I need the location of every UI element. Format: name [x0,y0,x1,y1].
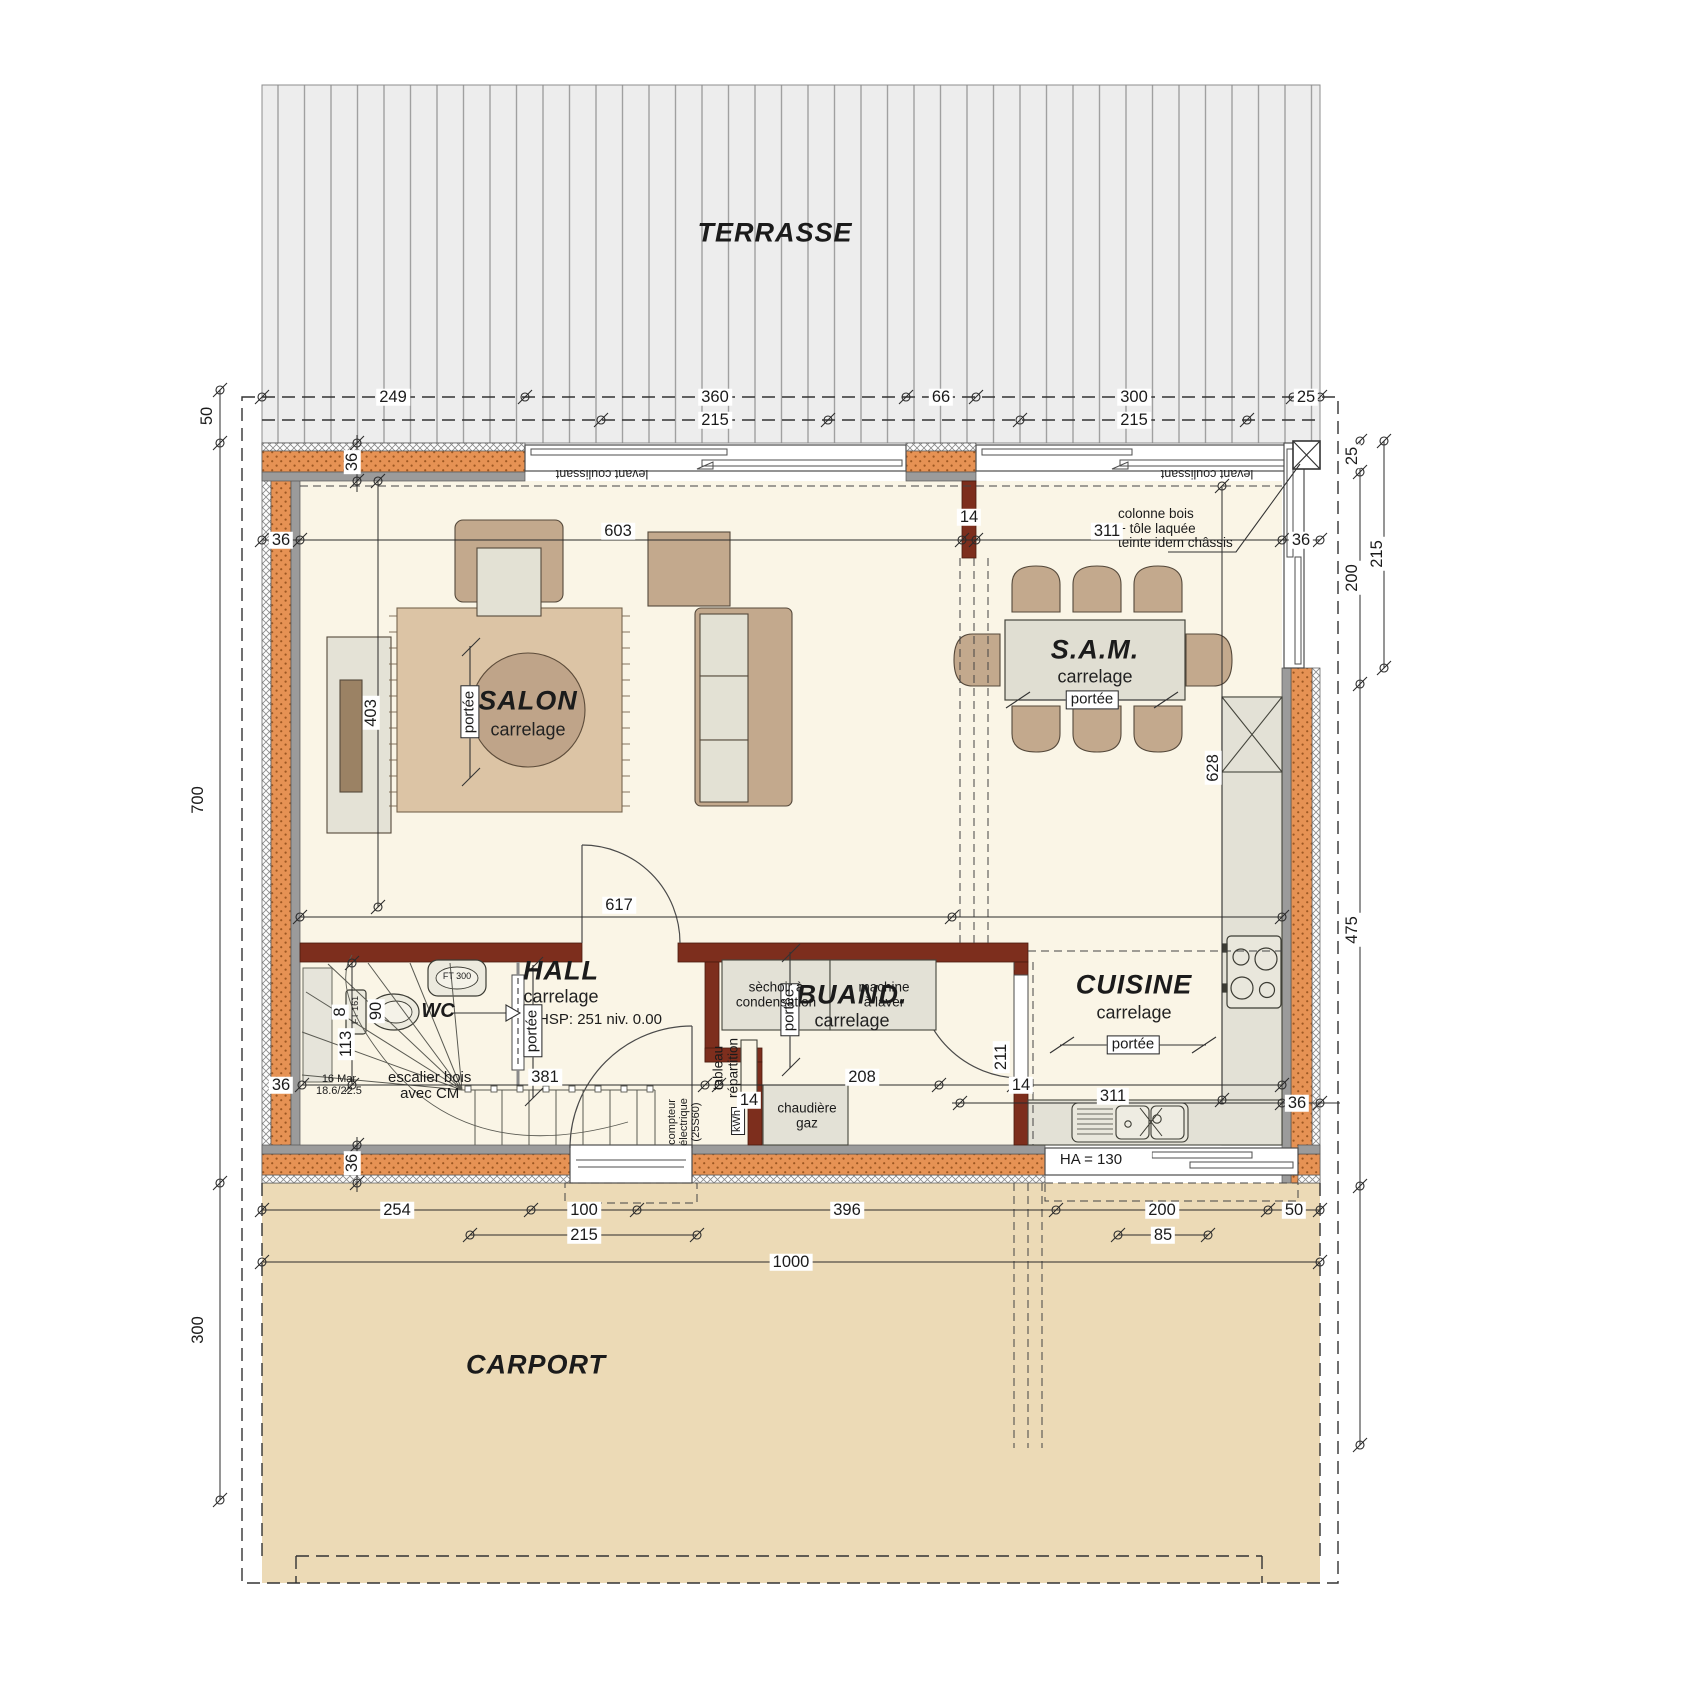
sliding-window-left [525,445,906,471]
carport-slab [262,1183,1320,1583]
plan-drawing [0,0,1700,1700]
terrace-deck [262,85,1320,443]
sliding-window-right [976,445,1293,471]
hob [1223,936,1281,1008]
wood-column [1293,441,1320,469]
dining-table [1005,620,1185,700]
floor-plan: TERRASSESALONS.A.M.HALLWCBUAND.CUISINECA… [0,0,1700,1700]
front-door [570,1145,692,1183]
kitchen-window [1045,1148,1298,1175]
kitchen-sink [1072,1103,1188,1142]
corner-window-east [1284,443,1304,668]
